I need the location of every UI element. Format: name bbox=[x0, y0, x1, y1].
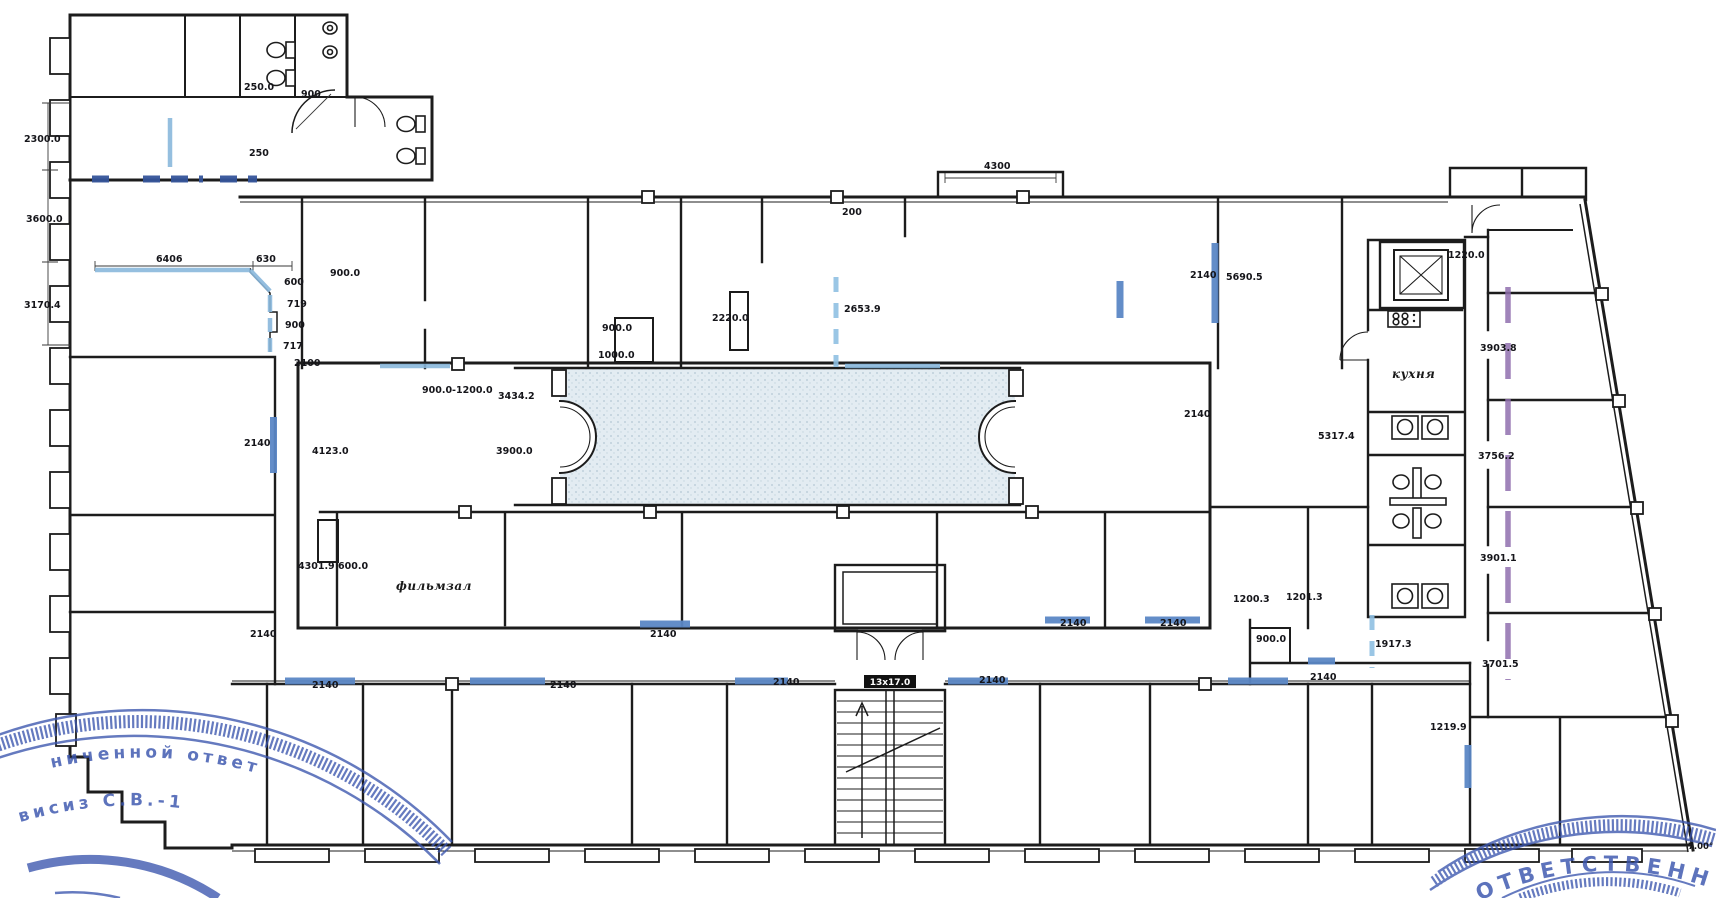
stair-run-label: 13х17.0 bbox=[870, 678, 911, 688]
stairwell bbox=[835, 565, 945, 845]
dimension-label: 900 bbox=[285, 320, 305, 331]
room-label-film-hall: фильмзал bbox=[396, 579, 472, 593]
dimension-label: 2653.9 bbox=[844, 304, 881, 315]
dimension-label: 2140 bbox=[773, 677, 800, 688]
dimension-label: 4301.9 bbox=[298, 561, 335, 572]
dimension-label: 2300.0 bbox=[24, 134, 61, 145]
dimension-label: 900.0 bbox=[602, 323, 632, 334]
dimension-label: 600.0 bbox=[338, 561, 368, 572]
dimension-label: 4300 bbox=[984, 161, 1011, 172]
dimension-label: 900 bbox=[301, 89, 321, 100]
dimension-label: 600 bbox=[284, 277, 304, 288]
room-label-kitchen: кухня bbox=[1392, 367, 1435, 381]
sink-icon bbox=[1392, 416, 1448, 439]
dimension-label: 200 bbox=[842, 207, 862, 218]
service-core bbox=[1340, 237, 1488, 617]
dimension-label: 3600.0 bbox=[26, 214, 63, 225]
dimension-label: 2140 bbox=[1190, 270, 1217, 281]
dimension-label: 900.0 bbox=[330, 268, 360, 279]
stair-treads bbox=[837, 701, 943, 833]
stove-icon bbox=[1388, 311, 1420, 327]
sink-icon bbox=[1392, 584, 1448, 608]
top-bay bbox=[938, 172, 1063, 197]
sink-icon bbox=[323, 22, 337, 58]
dimension-label: 2140 bbox=[550, 680, 577, 691]
dimension-label: 2140 bbox=[1310, 672, 1337, 683]
dimension-label: 2140 bbox=[1060, 618, 1087, 629]
central-corridor bbox=[515, 368, 1023, 505]
dimension-label: 4123.0 bbox=[312, 446, 349, 457]
dimension-label: 1200.3 bbox=[1233, 594, 1270, 605]
dimension-label: 900.0-1200.0 bbox=[422, 385, 493, 396]
dimension-label: 717 bbox=[283, 341, 303, 352]
dimension-label: 3901.1 bbox=[1480, 553, 1517, 564]
dimension-label: 2140 bbox=[244, 438, 271, 449]
dimension-label: 2140 bbox=[1184, 409, 1211, 420]
floor-plan-page: 2300.03600.03170.4250.090025064066306007… bbox=[0, 0, 1716, 898]
dimension-label: 2140 bbox=[979, 675, 1006, 686]
door-arc bbox=[355, 97, 385, 127]
toilet-icon bbox=[1390, 468, 1446, 538]
dimension-label: 3903.8 bbox=[1480, 343, 1517, 354]
dimension-label: 1201.3 bbox=[1286, 592, 1323, 603]
dimension-label: 2100 bbox=[294, 358, 321, 369]
dimension-label: 719 bbox=[287, 299, 307, 310]
dimension-label: 250.0 bbox=[244, 82, 274, 93]
dimension-label: 2140 bbox=[312, 680, 339, 691]
dimension-label: 5317.4 bbox=[1318, 431, 1355, 442]
dimension-label: 3701.5 bbox=[1482, 659, 1519, 670]
dimension-label: 2140 bbox=[650, 629, 677, 640]
toilet-icon bbox=[397, 116, 425, 164]
dimension-label: 900.0 bbox=[1256, 634, 1286, 645]
dimension-label: 1000.0 bbox=[598, 350, 635, 361]
light-blue-partition bbox=[95, 118, 940, 366]
dimension-lines bbox=[42, 103, 292, 345]
dimension-label: 3900.0 bbox=[496, 446, 533, 457]
double-door-arcs bbox=[857, 631, 923, 660]
dimension-label: 3756.2 bbox=[1478, 451, 1515, 462]
dimension-label: 250 bbox=[249, 148, 269, 159]
dimension-label: 3434.2 bbox=[498, 391, 535, 402]
dimension-label: 630 bbox=[256, 254, 276, 265]
dimension-label: 3170.4 bbox=[24, 300, 61, 311]
floor-plan-drawing: 2300.03600.03170.4250.090025064066306007… bbox=[0, 0, 1716, 898]
dimension-label: 6406 bbox=[156, 254, 183, 265]
stair-break-line bbox=[846, 728, 940, 772]
dimension-label: 1917.3 bbox=[1375, 639, 1412, 650]
toilet-icon bbox=[267, 42, 295, 86]
dimension-label: 1220.0 bbox=[1448, 250, 1485, 261]
dimension-label: 5690.5 bbox=[1226, 272, 1263, 283]
door-arc bbox=[1340, 332, 1368, 360]
angle-label: 7.00° bbox=[1688, 842, 1713, 852]
dimension-label: 1219.9 bbox=[1430, 722, 1467, 733]
corridor-shaded-area bbox=[560, 368, 1015, 505]
dimension-label: 2140 bbox=[250, 629, 277, 640]
dimension-label: 2140 bbox=[1160, 618, 1187, 629]
dimension-label: 2220.0 bbox=[712, 313, 749, 324]
